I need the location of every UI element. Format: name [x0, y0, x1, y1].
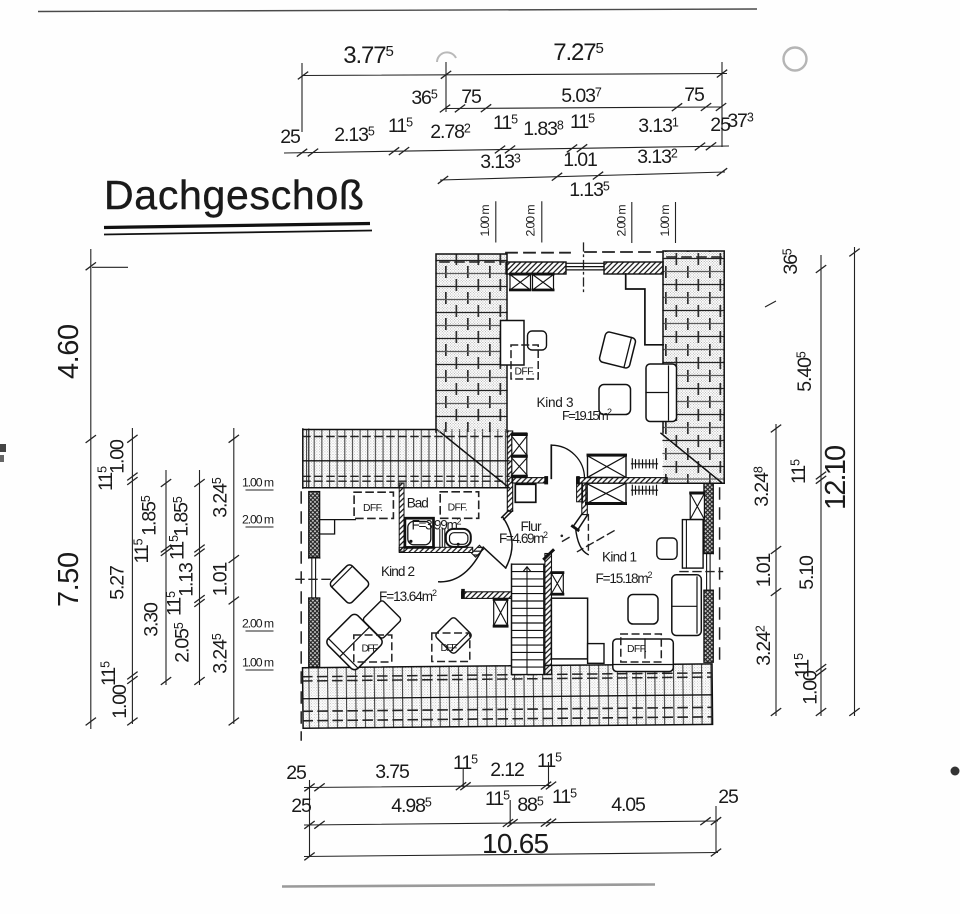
svg-text:1.01: 1.01 — [210, 562, 232, 596]
svg-text:F=15.18m2: F=15.18m2 — [596, 570, 653, 586]
svg-text:F=19.15m2: F=19.15m2 — [562, 407, 612, 423]
svg-text:1.00: 1.00 — [107, 439, 129, 474]
svg-text:DFF.: DFF. — [627, 644, 647, 655]
svg-text:25: 25 — [280, 126, 301, 148]
svg-text:1.01: 1.01 — [563, 149, 597, 171]
svg-text:1.01: 1.01 — [753, 553, 775, 587]
svg-text:1.00: 1.00 — [109, 684, 131, 719]
svg-text:Kind 2: Kind 2 — [381, 564, 415, 579]
svg-text:25: 25 — [286, 762, 307, 784]
svg-text:1.00 m: 1.00 m — [242, 656, 274, 670]
svg-text:DFF.: DFF. — [515, 367, 535, 378]
svg-text:2.00 m: 2.00 m — [242, 617, 274, 631]
svg-text:F=3.99m2: F=3.99m2 — [412, 516, 462, 532]
svg-text:3.30: 3.30 — [141, 602, 163, 637]
svg-text:25: 25 — [291, 795, 312, 817]
svg-text:5.10: 5.10 — [796, 555, 818, 590]
svg-text:4.60: 4.60 — [53, 325, 85, 379]
svg-text:7.50: 7.50 — [53, 553, 85, 607]
svg-text:DFF: DFF — [441, 643, 458, 654]
svg-text:1.13: 1.13 — [176, 563, 198, 597]
svg-text:Bad: Bad — [407, 495, 429, 510]
svg-text:2.00 m: 2.00 m — [242, 513, 274, 527]
svg-text:F=13.64m2: F=13.64m2 — [379, 588, 437, 604]
svg-text:25: 25 — [710, 114, 731, 136]
svg-text:10.65: 10.65 — [482, 828, 549, 859]
svg-text:1.00 m: 1.00 m — [478, 205, 492, 237]
svg-text:DFF.: DFF. — [363, 503, 383, 514]
svg-text:Dachgeschoß: Dachgeschoß — [104, 172, 364, 218]
svg-text:4.05: 4.05 — [611, 794, 646, 816]
svg-text:1.00: 1.00 — [800, 670, 822, 705]
svg-text:1.00 m: 1.00 m — [242, 476, 274, 490]
svg-text:12.10: 12.10 — [820, 446, 852, 510]
svg-text:DFF: DFF — [362, 644, 379, 655]
svg-text:F=4.69m2: F=4.69m2 — [499, 530, 548, 546]
svg-text:1.00 m: 1.00 m — [658, 205, 672, 237]
svg-text:5.27: 5.27 — [107, 566, 129, 600]
svg-text:2.00 m: 2.00 m — [615, 205, 629, 237]
svg-text:3.75: 3.75 — [375, 761, 410, 783]
svg-text:2.12: 2.12 — [490, 759, 524, 781]
svg-text:25: 25 — [718, 786, 739, 808]
svg-text:75: 75 — [684, 84, 705, 106]
svg-text:2.00 m: 2.00 m — [524, 205, 538, 237]
svg-text:75: 75 — [461, 86, 482, 108]
svg-text:Kind 1: Kind 1 — [602, 549, 637, 564]
svg-text:DFF.: DFF. — [448, 503, 468, 514]
